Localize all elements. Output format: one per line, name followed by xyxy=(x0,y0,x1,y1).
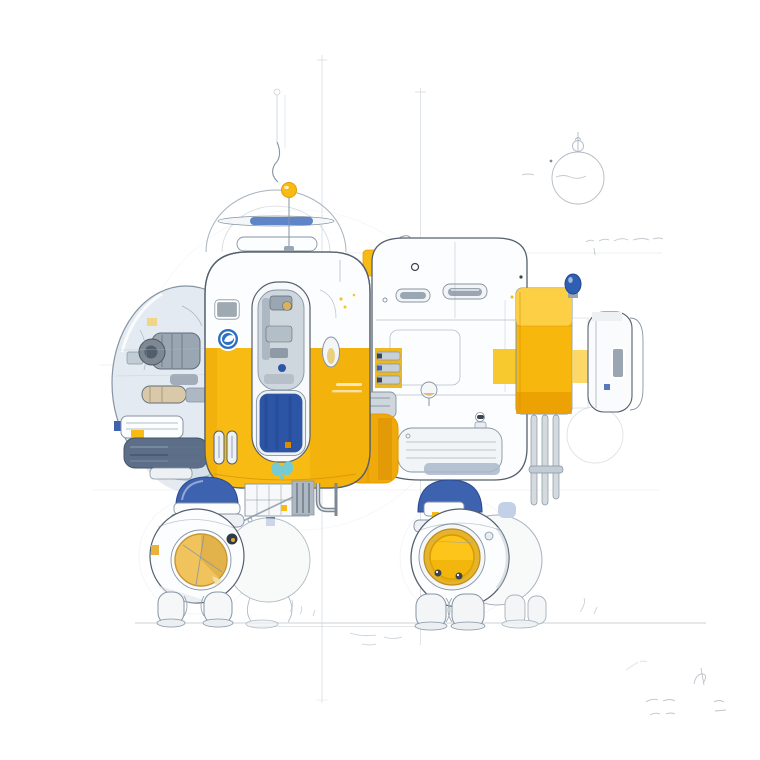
antenna-ball xyxy=(282,183,297,198)
robot-pod xyxy=(112,89,643,630)
emblem-badge xyxy=(217,328,239,350)
dome-platform xyxy=(237,237,317,251)
left-front-leg xyxy=(150,477,244,627)
porthole-left xyxy=(171,530,231,590)
door xyxy=(252,282,310,462)
pencil-notes-bottom-right xyxy=(626,661,726,715)
rear-underbelly xyxy=(398,428,502,475)
visor-blue-band xyxy=(250,217,313,225)
pencil-note-mid-right xyxy=(586,238,663,255)
porthole-right xyxy=(419,524,485,590)
side-vent-stack xyxy=(375,348,402,388)
orange-chip xyxy=(285,442,291,448)
oval-handle xyxy=(323,337,340,367)
small-bolt xyxy=(485,532,493,540)
cab-module xyxy=(205,252,370,488)
antenna xyxy=(273,89,297,252)
rear-cap-tint xyxy=(498,502,516,518)
engine-pipes xyxy=(529,415,563,505)
small-window xyxy=(216,301,238,318)
pencil-sphere-sketch xyxy=(522,132,604,204)
yellow-tab xyxy=(151,545,159,555)
engine-block xyxy=(516,274,643,505)
robot-pod-illustration xyxy=(0,0,760,760)
illustration-canvas xyxy=(0,0,760,760)
door-window xyxy=(256,390,305,455)
antenna-base xyxy=(284,246,294,252)
yellow-chip xyxy=(131,430,144,438)
